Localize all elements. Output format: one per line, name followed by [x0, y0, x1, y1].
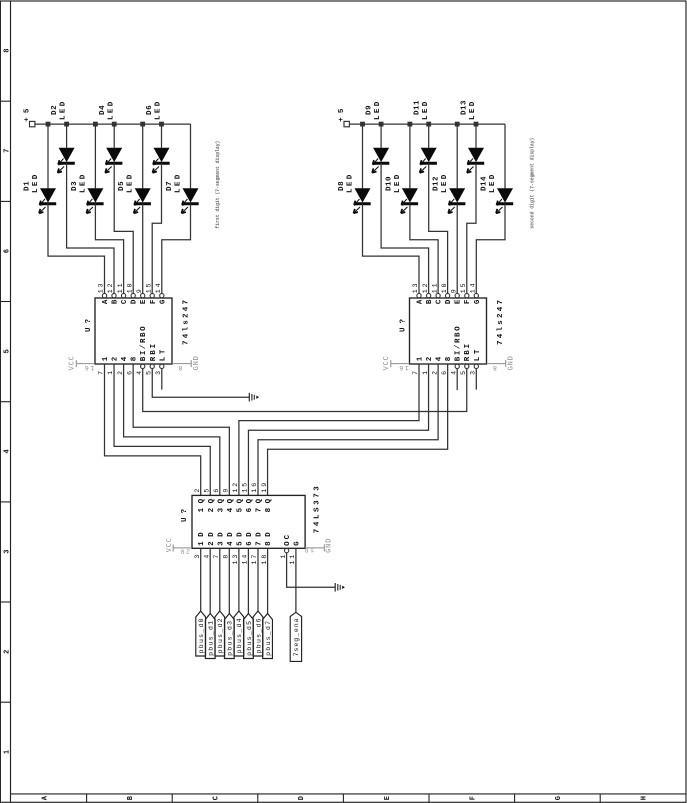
svg-text:D1: D1 — [23, 181, 31, 191]
svg-text:11: 11 — [289, 555, 296, 565]
svg-text:20: 20 — [180, 547, 190, 554]
svg-text:14: 14 — [470, 283, 477, 293]
svg-text:10: 10 — [441, 283, 448, 293]
svg-text:LED: LED — [60, 101, 68, 120]
svg-text:D2: D2 — [51, 105, 59, 115]
svg-text:1: 1 — [4, 750, 12, 754]
svg-text:3: 3 — [194, 555, 201, 559]
svg-text:7: 7 — [98, 371, 105, 375]
svg-text:GND: GND — [193, 356, 201, 370]
svg-text:4: 4 — [121, 356, 129, 361]
svg-text:D: D — [445, 299, 453, 304]
svg-text:LED: LED — [174, 174, 182, 193]
svg-text:LED: LED — [441, 174, 449, 193]
svg-text:LED: LED — [394, 174, 402, 193]
svg-text:74ls247: 74ls247 — [497, 300, 505, 345]
svg-text:8: 8 — [223, 555, 230, 559]
svg-text:9: 9 — [136, 289, 143, 293]
svg-text:LED: LED — [127, 174, 135, 193]
svg-text:3: 3 — [155, 371, 162, 375]
svg-text:VCC: VCC — [69, 356, 77, 370]
svg-text:LED: LED — [346, 174, 354, 193]
svg-text:8: 8 — [493, 364, 497, 371]
svg-text:6: 6 — [126, 371, 133, 375]
svg-text:D14: D14 — [480, 176, 488, 191]
svg-text:C: C — [213, 796, 221, 800]
svg-text:D9: D9 — [366, 105, 374, 115]
svg-text:7: 7 — [213, 555, 220, 559]
svg-text:5: 5 — [145, 371, 152, 375]
svg-text:2: 2 — [431, 371, 438, 375]
svg-text:D10: D10 — [385, 176, 393, 191]
svg-text:3: 3 — [4, 549, 12, 553]
svg-text:7: 7 — [4, 149, 12, 153]
svg-text:6: 6 — [441, 371, 448, 375]
svg-text:D12: D12 — [433, 176, 441, 191]
svg-text:14: 14 — [242, 555, 249, 565]
svg-text:7seg_ena: 7seg_ena — [293, 618, 300, 656]
svg-text:second digit (7-segment displa: second digit (7-segment display) — [529, 138, 536, 229]
svg-text:12: 12 — [107, 283, 114, 293]
svg-text:D5: D5 — [118, 181, 126, 191]
svg-text:B: B — [426, 299, 434, 304]
svg-text:D13: D13 — [461, 100, 469, 115]
svg-text:10: 10 — [304, 546, 314, 553]
svg-text:F: F — [464, 299, 472, 304]
svg-text:G: G — [293, 541, 301, 546]
svg-text:first digit (7-segment display: first digit (7-segment display) — [214, 141, 221, 229]
svg-text:16: 16 — [251, 483, 258, 493]
svg-text:4: 4 — [136, 371, 143, 375]
svg-text:D7: D7 — [166, 181, 174, 191]
svg-text:3: 3 — [470, 371, 477, 375]
svg-text:OC: OC — [284, 534, 292, 545]
svg-text:GND: GND — [507, 356, 515, 370]
svg-text:8: 8 — [4, 48, 12, 52]
svg-text:15: 15 — [145, 283, 152, 293]
svg-text:4: 4 — [436, 356, 444, 361]
svg-text:2: 2 — [117, 371, 124, 375]
svg-text:LED: LED — [489, 174, 497, 193]
svg-text:1: 1 — [280, 555, 287, 559]
svg-text:D4: D4 — [99, 105, 107, 115]
svg-text:74ls247: 74ls247 — [183, 300, 191, 345]
svg-text:D6: D6 — [146, 105, 154, 115]
svg-text:13: 13 — [98, 283, 105, 293]
svg-text:G: G — [555, 796, 563, 800]
svg-text:11: 11 — [117, 283, 124, 293]
svg-text:9: 9 — [450, 289, 457, 293]
svg-text:7: 7 — [412, 371, 419, 375]
svg-text:5: 5 — [4, 349, 12, 353]
svg-text:12: 12 — [232, 483, 239, 493]
svg-text:G: G — [159, 299, 167, 304]
svg-text:16: 16 — [399, 364, 409, 371]
svg-text:6: 6 — [4, 249, 12, 253]
svg-text:8: 8 — [445, 356, 453, 361]
svg-text:6: 6 — [213, 489, 220, 493]
svg-text:10: 10 — [126, 283, 133, 293]
svg-text:B: B — [112, 299, 120, 304]
svg-text:2: 2 — [426, 356, 434, 361]
svg-text:2: 2 — [4, 650, 12, 654]
svg-text:D3: D3 — [71, 181, 79, 191]
svg-text:VCC: VCC — [166, 538, 174, 552]
svg-text:F: F — [150, 299, 158, 304]
svg-text:BI/RBO: BI/RBO — [455, 326, 463, 361]
svg-text:F: F — [469, 796, 477, 800]
svg-text:12: 12 — [422, 283, 429, 293]
svg-text:5: 5 — [460, 371, 467, 375]
svg-text:E: E — [455, 299, 463, 304]
svg-text:D: D — [298, 796, 306, 800]
svg-text:A: A — [417, 299, 425, 304]
svg-text:D: D — [131, 299, 139, 304]
svg-text:1: 1 — [422, 371, 429, 375]
svg-text:C: C — [121, 299, 129, 304]
svg-text:8: 8 — [131, 356, 139, 361]
svg-text:13: 13 — [232, 555, 239, 565]
svg-text:8: 8 — [178, 364, 182, 371]
svg-text:E: E — [384, 796, 392, 800]
svg-text:E: E — [140, 299, 148, 304]
svg-text:LED: LED — [374, 101, 382, 120]
svg-text:H: H — [641, 796, 649, 800]
svg-text:A: A — [102, 299, 110, 304]
svg-text:4: 4 — [4, 449, 12, 453]
svg-text:BI/RBO: BI/RBO — [140, 326, 148, 361]
svg-text:RBI: RBI — [464, 344, 472, 361]
svg-text:15: 15 — [460, 283, 467, 293]
svg-text:RBI: RBI — [150, 344, 158, 361]
svg-text:15: 15 — [242, 483, 249, 493]
svg-text:LED: LED — [422, 101, 430, 120]
svg-text:4: 4 — [450, 371, 457, 375]
svg-text:2: 2 — [112, 356, 120, 361]
svg-text:LED: LED — [79, 174, 87, 193]
svg-text:D8: D8 — [338, 181, 346, 191]
svg-text:14: 14 — [155, 283, 162, 293]
svg-text:2: 2 — [194, 489, 201, 493]
svg-text:13: 13 — [412, 283, 419, 293]
svg-text:D11: D11 — [413, 100, 421, 115]
svg-text:1: 1 — [102, 356, 110, 361]
svg-text:16: 16 — [85, 364, 95, 371]
svg-text:4: 4 — [203, 555, 210, 559]
svg-text:1: 1 — [107, 371, 114, 375]
svg-text:LED: LED — [469, 101, 477, 120]
svg-text:5: 5 — [203, 489, 210, 493]
svg-text:G: G — [474, 299, 482, 304]
svg-text:LED: LED — [32, 174, 40, 193]
svg-text:18: 18 — [261, 555, 268, 565]
svg-text:LED: LED — [155, 101, 163, 120]
svg-text:LED: LED — [107, 101, 115, 120]
svg-text:17: 17 — [251, 555, 258, 565]
svg-text:9: 9 — [223, 489, 230, 493]
svg-text:1: 1 — [417, 356, 425, 361]
svg-text:19: 19 — [261, 483, 268, 493]
svg-text:VCC: VCC — [383, 356, 391, 370]
svg-text:GND: GND — [326, 539, 334, 553]
svg-text:C: C — [436, 299, 444, 304]
svg-text:11: 11 — [431, 283, 438, 293]
